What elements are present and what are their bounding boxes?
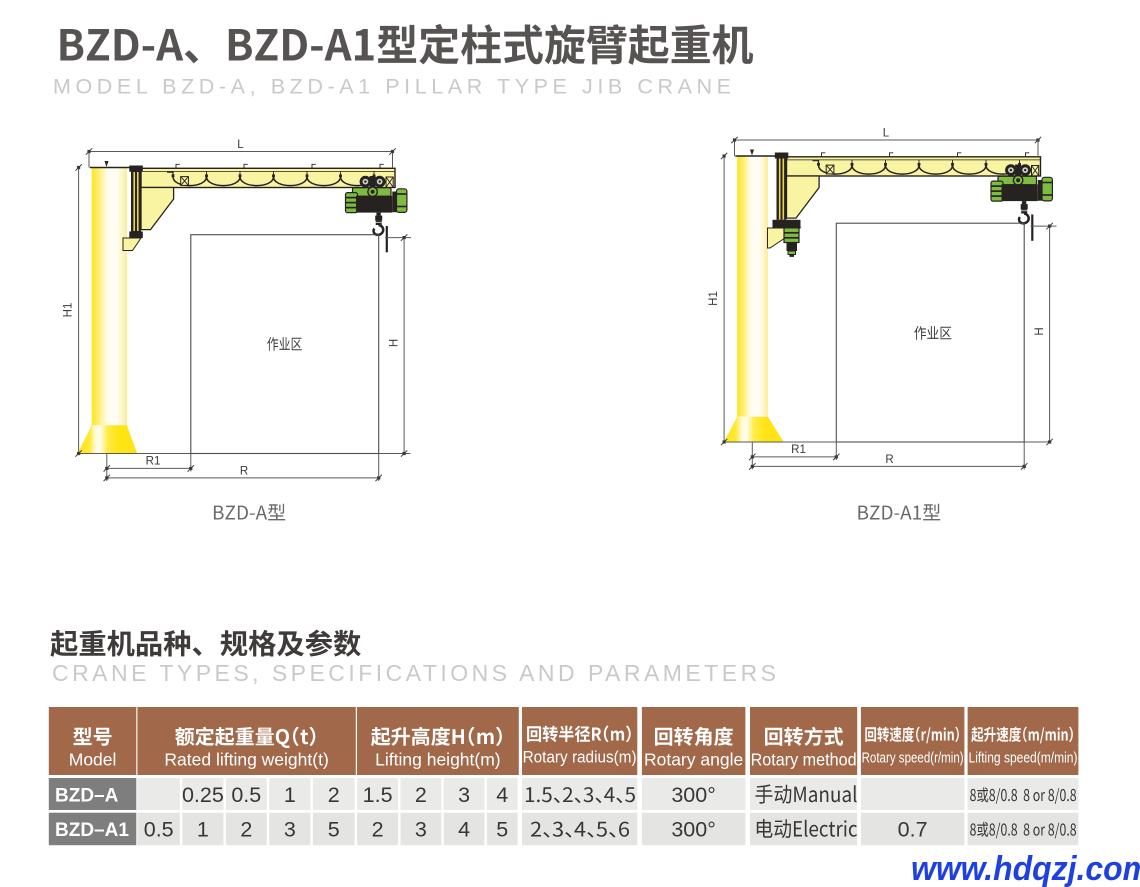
svg-text:Model: Model — [69, 750, 117, 770]
svg-text:3: 3 — [284, 818, 296, 842]
svg-text:Rated lifting weight(t): Rated lifting weight(t) — [164, 750, 328, 770]
svg-text:H: H — [1034, 327, 1046, 335]
svg-text:4: 4 — [496, 783, 508, 807]
svg-text:1.5: 1.5 — [363, 783, 393, 807]
svg-text:0.5: 0.5 — [231, 783, 261, 807]
svg-text:300°: 300° — [671, 818, 715, 842]
svg-text:R1: R1 — [791, 444, 806, 456]
svg-text:H1: H1 — [63, 303, 75, 318]
svg-text:1: 1 — [197, 818, 209, 842]
svg-text:0.7: 0.7 — [898, 818, 928, 842]
svg-text:0.5: 0.5 — [144, 818, 174, 842]
svg-text:MODEL BZD-A, BZD-A1 PILLAR TYP: MODEL BZD-A, BZD-A1 PILLAR TYPE JIB CRAN… — [53, 75, 731, 99]
svg-text:1: 1 — [284, 783, 296, 807]
svg-text:4: 4 — [458, 818, 470, 842]
svg-text:www.hdqzj.com: www.hdqzj.com — [911, 850, 1140, 887]
svg-text:L: L — [883, 128, 890, 140]
svg-text:Lifting height(m): Lifting height(m) — [375, 750, 500, 770]
svg-text:CRANE TYPES, SPECIFICATIONS AN: CRANE TYPES, SPECIFICATIONS AND PARAMETE… — [52, 660, 776, 686]
svg-text:2: 2 — [240, 818, 252, 842]
svg-text:2: 2 — [415, 783, 427, 807]
svg-text:Lifting speed(m/min): Lifting speed(m/min) — [969, 750, 1078, 767]
svg-text:Rotary radius(m): Rotary radius(m) — [523, 749, 637, 767]
svg-text:Rotary angle: Rotary angle — [644, 750, 743, 770]
svg-text:BZD–A: BZD–A — [55, 786, 119, 807]
svg-text:R: R — [240, 466, 248, 478]
svg-text:BZD–A1: BZD–A1 — [55, 820, 129, 841]
svg-text:3: 3 — [458, 783, 470, 807]
svg-text:R: R — [885, 454, 893, 466]
svg-text:300°: 300° — [671, 783, 715, 807]
svg-text:H1: H1 — [708, 291, 720, 306]
svg-text:3: 3 — [415, 818, 427, 842]
svg-text:Rotary speed(r/min): Rotary speed(r/min) — [862, 750, 964, 767]
svg-text:2: 2 — [328, 783, 340, 807]
svg-text:H: H — [389, 339, 401, 347]
svg-text:R1: R1 — [146, 456, 161, 468]
svg-text:0.25: 0.25 — [182, 783, 224, 807]
svg-text:5: 5 — [328, 818, 340, 842]
svg-text:L: L — [237, 139, 244, 151]
svg-text:5: 5 — [496, 818, 508, 842]
svg-text:Rotary method: Rotary method — [751, 750, 857, 770]
svg-text:2: 2 — [372, 818, 384, 842]
